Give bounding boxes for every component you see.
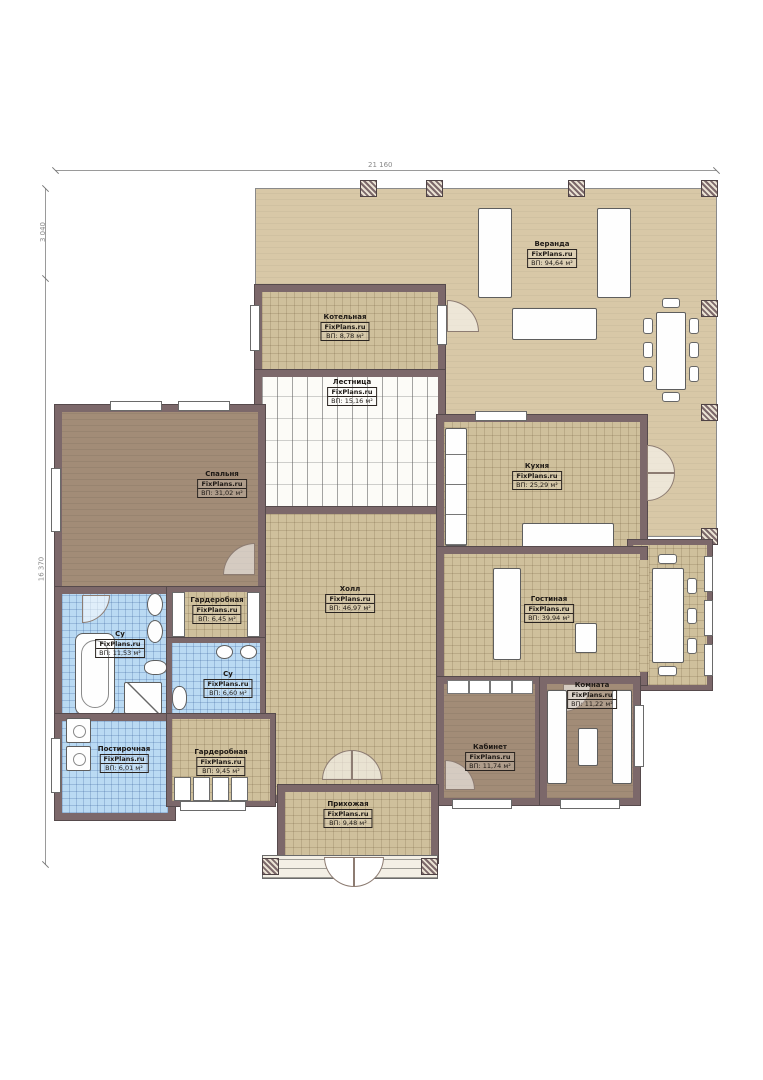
room-name: Гардеробная (190, 596, 243, 605)
room-label-veranda: Веранда FixPlans.ru ВП: 94,64 м² (527, 240, 577, 269)
watermark: FixPlans.ru (96, 640, 144, 649)
room-name: Постирочная (98, 745, 150, 754)
room-area: ВП: 11,53 м² (96, 649, 144, 657)
room-label-kabinet: Кабинет FixPlans.ru ВП: 11,74 м² (465, 743, 515, 772)
window (110, 401, 162, 411)
watermark: FixPlans.ru (197, 758, 244, 767)
column (360, 180, 377, 197)
kitchen-counter (445, 428, 467, 546)
wardrobe-shelf (212, 777, 229, 801)
sofa (493, 568, 521, 660)
column (568, 180, 585, 197)
chair (662, 392, 680, 402)
room-label-su-2: Су FixPlans.ru ВП: 6,60 м² (203, 670, 252, 699)
washing-machine (66, 718, 91, 743)
room-name: Гардеробная (194, 748, 247, 757)
watermark: FixPlans.ru (525, 605, 573, 614)
column (421, 858, 438, 875)
wardrobe-shelf (247, 592, 260, 637)
room-name: Котельная (320, 313, 369, 322)
column (701, 404, 718, 421)
column (701, 180, 718, 197)
room-name: Гостиная (524, 595, 574, 604)
room-name: Лестница (327, 378, 377, 387)
window (51, 738, 61, 793)
chair (687, 578, 697, 594)
room-area: ВП: 9,48 м² (324, 819, 371, 827)
room-label-su-1: Су FixPlans.ru ВП: 11,53 м² (95, 630, 145, 659)
wardrobe-shelf (193, 777, 210, 801)
room-label-postirochnaya: Постирочная FixPlans.ru ВП: 6,01 м² (98, 745, 150, 774)
chair (643, 318, 653, 334)
bench (478, 208, 512, 298)
room-label-holl: Холл FixPlans.ru ВП: 46,97 м² (325, 585, 375, 614)
window (704, 644, 713, 676)
watermark: FixPlans.ru (198, 480, 246, 489)
living-bay-opening (639, 560, 649, 672)
room-area: ВП: 6,60 м² (204, 689, 251, 697)
window (178, 401, 230, 411)
glazed-partition (447, 680, 533, 694)
watermark: FixPlans.ru (204, 680, 251, 689)
shower-tray (124, 682, 162, 714)
watermark: FixPlans.ru (466, 753, 514, 762)
bench (597, 208, 631, 298)
room-area: ВП: 46,97 м² (326, 604, 374, 612)
room-label-komnata: Комната FixPlans.ru ВП: 11,22 м² (567, 681, 617, 710)
toilet (172, 686, 187, 710)
washer-drum (73, 753, 86, 766)
glazed-cell (512, 680, 534, 694)
window (634, 705, 644, 767)
entry-door-arc (354, 857, 384, 887)
room-label-prihozhaya: Прихожая FixPlans.ru ВП: 9,48 м² (323, 800, 372, 829)
watermark: FixPlans.ru (326, 595, 374, 604)
sink (147, 593, 163, 616)
glazed-cell (490, 680, 512, 694)
chair (689, 342, 699, 358)
chair (689, 318, 699, 334)
room-label-garderobnaya-1: Гардеробная FixPlans.ru ВП: 6,45 м² (190, 596, 243, 625)
chair (658, 666, 677, 676)
room-label-kuhnya: Кухня FixPlans.ru ВП: 25,29 м² (512, 462, 562, 491)
dimension-height-lower: 16 370 (37, 557, 45, 582)
dining-table (652, 568, 684, 663)
column (701, 300, 718, 317)
window (250, 305, 260, 351)
window (560, 799, 620, 809)
room-area: ВП: 31,02 м² (198, 489, 246, 497)
watermark: FixPlans.ru (193, 606, 240, 615)
chair (643, 342, 653, 358)
watermark: FixPlans.ru (324, 810, 371, 819)
room-name: Су (203, 670, 252, 679)
window (51, 468, 61, 532)
chair (643, 366, 653, 382)
window (704, 600, 713, 636)
sink (240, 645, 257, 659)
glazed-cell (447, 680, 469, 694)
room-label-spalnya: Спальня FixPlans.ru ВП: 31,02 м² (197, 470, 247, 499)
window (180, 801, 246, 811)
entry-door-arc (324, 857, 354, 887)
room-label-garderobnaya-2: Гардеробная FixPlans.ru ВП: 9,45 м² (194, 748, 247, 777)
room-label-kotelnaya: Котельная FixPlans.ru ВП: 8,78 м² (320, 313, 369, 342)
room-name: Веранда (527, 240, 577, 249)
window (475, 411, 527, 421)
bench (512, 308, 597, 340)
room-area: ВП: 6,45 м² (193, 615, 240, 623)
cabinet (578, 728, 598, 766)
wardrobe-shelf (231, 777, 248, 801)
chair (687, 638, 697, 654)
room-name: Холл (325, 585, 375, 594)
washing-machine (66, 746, 91, 771)
sink (216, 645, 233, 659)
watermark: FixPlans.ru (528, 250, 576, 259)
dining-table (656, 312, 686, 390)
room-area: ВП: 15,16 м² (328, 397, 376, 405)
room-area: ВП: 94,64 м² (528, 259, 576, 267)
room-area: ВП: 6,01 м² (100, 764, 147, 772)
watermark: FixPlans.ru (513, 472, 561, 481)
side-table (575, 623, 597, 653)
window (452, 799, 512, 809)
room-area: ВП: 11,74 м² (466, 762, 514, 770)
room-name: Комната (567, 681, 617, 690)
room-label-lestnitsa: Лестница FixPlans.ru ВП: 15,16 м² (327, 378, 377, 407)
watermark: FixPlans.ru (100, 755, 147, 764)
watermark: FixPlans.ru (328, 388, 376, 397)
floor-plan: 21 160 3 040 16 370 (0, 0, 763, 1080)
column (262, 858, 279, 875)
window (704, 556, 713, 592)
room-area: ВП: 25,29 м² (513, 481, 561, 489)
room-name: Кабинет (465, 743, 515, 752)
room-name: Спальня (197, 470, 247, 479)
door-opening (437, 305, 447, 345)
wardrobe-shelf (172, 592, 185, 637)
dimension-width-total: 21 160 (368, 161, 393, 169)
chair (662, 298, 680, 308)
room-name: Прихожая (323, 800, 372, 809)
dimension-line-top (55, 170, 717, 171)
chair (658, 554, 677, 564)
dimension-height-upper: 3 040 (39, 222, 47, 242)
room-area: ВП: 9,45 м² (197, 767, 244, 775)
wardrobe-shelf (174, 777, 191, 801)
chair (689, 366, 699, 382)
toilet (144, 660, 167, 675)
room-area: ВП: 8,78 м² (321, 332, 368, 340)
washer-drum (73, 725, 86, 738)
room-name: Су (95, 630, 145, 639)
sink (147, 620, 163, 643)
column (426, 180, 443, 197)
glazed-cell (469, 680, 491, 694)
room-area: ВП: 39,94 м² (525, 614, 573, 622)
room-name: Кухня (512, 462, 562, 471)
watermark: FixPlans.ru (568, 691, 616, 700)
chair (687, 608, 697, 624)
watermark: FixPlans.ru (321, 323, 368, 332)
room-area: ВП: 11,22 м² (568, 700, 616, 708)
dimension-line-left (45, 188, 46, 865)
wardrobe (547, 690, 567, 784)
room-label-gostinaya: Гостиная FixPlans.ru ВП: 39,94 м² (524, 595, 574, 624)
